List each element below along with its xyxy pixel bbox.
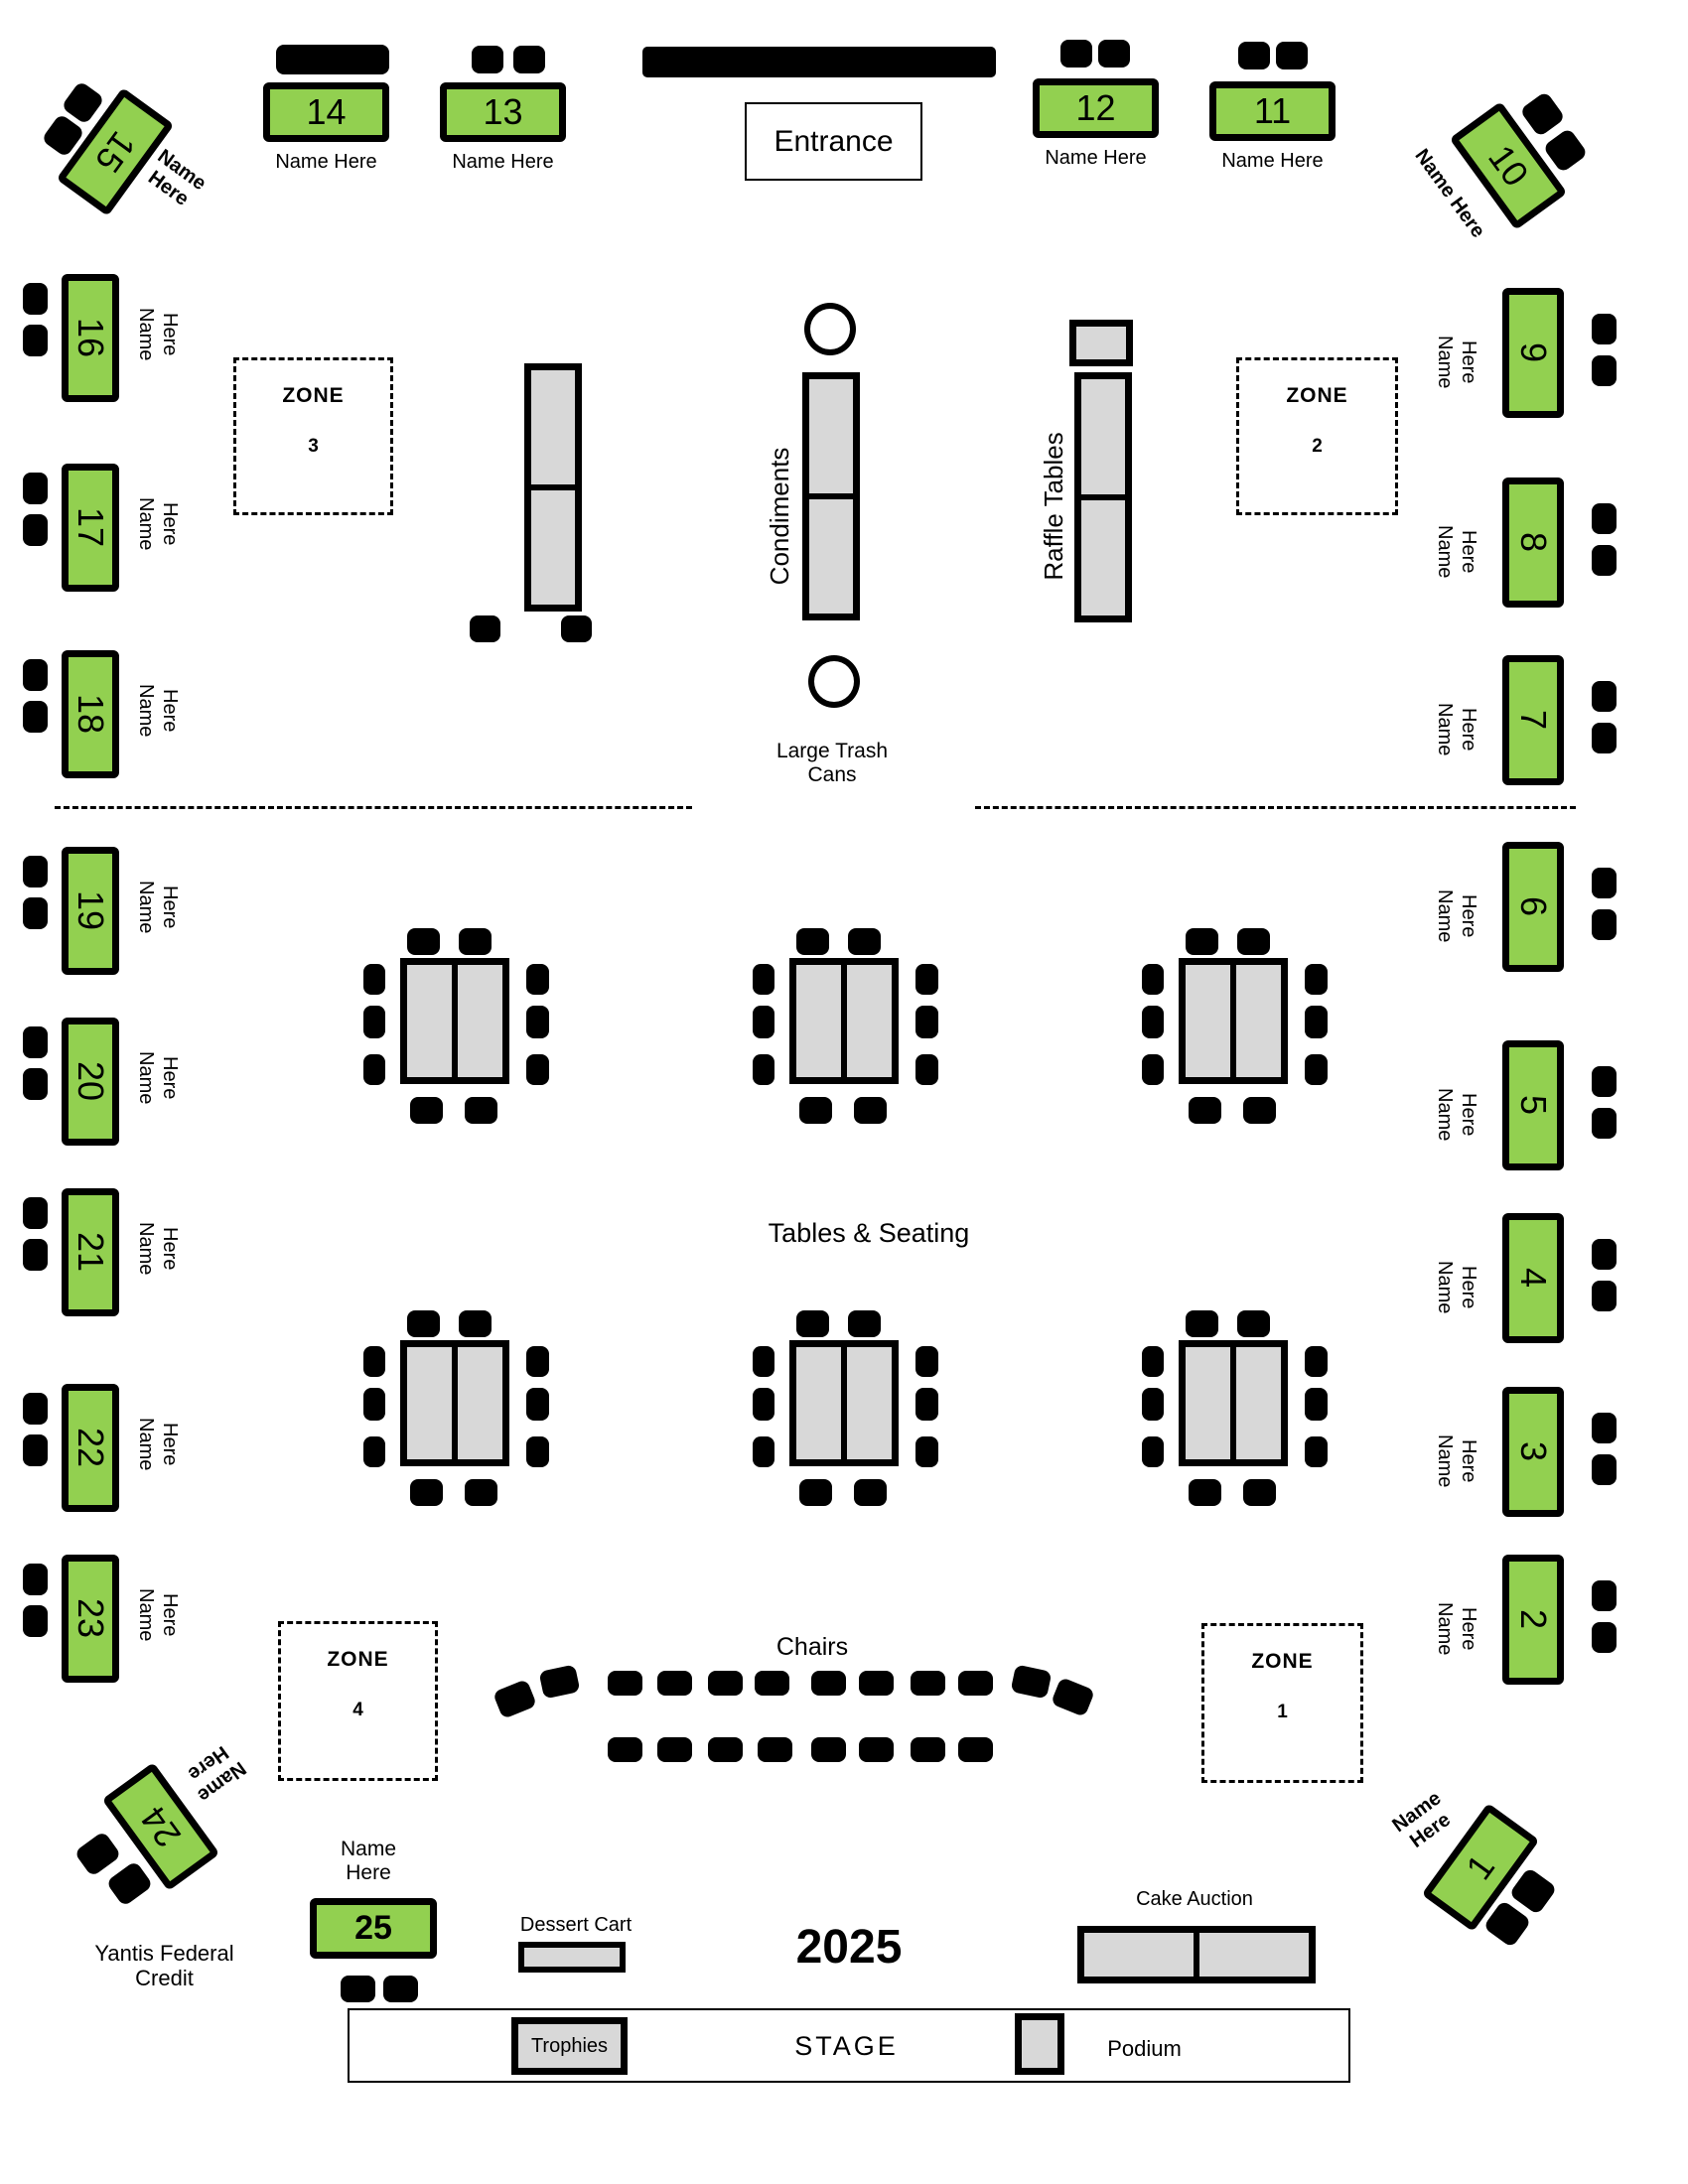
table-21-group: 21 Name Here xyxy=(23,1188,192,1318)
table-8: 8 xyxy=(1502,478,1564,608)
banquet-table xyxy=(1179,958,1288,1084)
table-4: 4 xyxy=(1502,1213,1564,1343)
chair xyxy=(561,615,592,642)
chair xyxy=(753,1006,774,1038)
table-25: 25 xyxy=(310,1898,437,1959)
chair xyxy=(23,856,48,887)
chair xyxy=(465,1479,497,1506)
table-23-group: 23 Name Here xyxy=(23,1555,192,1685)
chair xyxy=(915,1054,938,1085)
chair xyxy=(1592,1454,1617,1485)
table-23-label: Name Here xyxy=(134,1565,182,1666)
table-divider xyxy=(1080,494,1126,500)
table-22-group: 22 Name Here xyxy=(23,1384,192,1514)
table-12: 12 xyxy=(1033,78,1159,138)
chair xyxy=(1592,1580,1617,1611)
table-number: 3 xyxy=(1512,1441,1554,1461)
zone-title: ZONE xyxy=(1204,1650,1360,1674)
chair xyxy=(1237,1310,1270,1337)
table-number: 7 xyxy=(1512,710,1554,730)
chair xyxy=(1305,1006,1328,1038)
table-number: 13 xyxy=(483,91,522,133)
chair xyxy=(657,1737,692,1762)
chair xyxy=(911,1671,945,1696)
chair xyxy=(526,964,549,995)
table-number: 11 xyxy=(1254,90,1291,132)
table-14: 14 xyxy=(263,82,389,142)
zone-3-box: ZONE 3 xyxy=(233,357,393,515)
chair xyxy=(526,1054,549,1085)
chair xyxy=(848,1310,881,1337)
table-18-group: 18 Name Here xyxy=(23,650,192,780)
chair xyxy=(23,1605,48,1637)
table-number: 25 xyxy=(354,1909,392,1948)
zone-number: 4 xyxy=(281,1700,435,1721)
chair xyxy=(859,1737,894,1762)
chair xyxy=(1060,40,1092,68)
chair xyxy=(915,1346,938,1377)
chair xyxy=(1189,1479,1221,1506)
table-number: 2 xyxy=(1512,1609,1554,1629)
separator-line-right xyxy=(975,806,1576,809)
chair xyxy=(608,1671,642,1696)
chair xyxy=(608,1737,642,1762)
table-divider xyxy=(1194,1932,1199,1978)
chair xyxy=(383,1976,418,2002)
trash-can-icon xyxy=(804,303,856,355)
chair xyxy=(1142,1054,1164,1085)
banquet-table-group xyxy=(400,958,509,1084)
chair xyxy=(23,473,48,504)
trash-can-icon xyxy=(808,655,860,708)
trophies-label: Trophies xyxy=(531,2035,608,2058)
table-6-group: Name Here 6 xyxy=(1433,842,1621,972)
chair xyxy=(526,1388,549,1421)
yantis-label: Yantis Federal Credit xyxy=(77,1941,251,1991)
table-number: 6 xyxy=(1512,896,1554,916)
table-2-group: Name Here 2 xyxy=(1433,1555,1621,1685)
raffle-table-long xyxy=(1074,372,1132,622)
chair xyxy=(1592,503,1617,534)
banquet-table xyxy=(400,1340,509,1466)
table-6-label: Name Here xyxy=(1433,866,1480,967)
chair xyxy=(363,1436,385,1467)
chair xyxy=(854,1479,887,1506)
table-divider xyxy=(841,964,847,1078)
table-8-label: Name Here xyxy=(1433,501,1480,603)
table-number: 14 xyxy=(306,91,346,133)
table-divider xyxy=(1230,964,1236,1078)
chair xyxy=(23,897,48,929)
entrance-label: Entrance xyxy=(774,125,893,159)
chair xyxy=(1519,91,1566,138)
table-18-label: Name Here xyxy=(134,660,182,761)
banquet-table-group xyxy=(400,1340,509,1466)
chair xyxy=(1592,1239,1617,1270)
table-19: 19 xyxy=(62,847,119,975)
podium xyxy=(1015,2013,1064,2075)
chair xyxy=(23,1026,48,1058)
chair xyxy=(915,1006,938,1038)
chair xyxy=(1592,868,1617,898)
table-20: 20 xyxy=(62,1018,119,1146)
stage-label: STAGE xyxy=(765,2031,928,2062)
table-divider xyxy=(841,1346,847,1460)
chair xyxy=(1592,723,1617,753)
chair xyxy=(1592,681,1617,712)
chair xyxy=(459,928,492,955)
table-number: 12 xyxy=(1075,87,1115,129)
table-21: 21 xyxy=(62,1188,119,1316)
year-label: 2025 xyxy=(770,1920,928,1975)
banquet-table-group xyxy=(789,958,899,1084)
chair xyxy=(1051,1677,1095,1717)
table-17-group: 17 Name Here xyxy=(23,464,192,594)
chair xyxy=(1305,1054,1328,1085)
chair xyxy=(753,964,774,995)
table-2-label: Name Here xyxy=(1433,1578,1480,1680)
chair xyxy=(1238,42,1270,69)
chair xyxy=(105,1860,153,1907)
chair xyxy=(799,1479,832,1506)
table-9-label: Name Here xyxy=(1433,312,1480,413)
chair xyxy=(1508,1867,1557,1916)
chair xyxy=(538,1664,580,1699)
banquet-table-group xyxy=(789,1340,899,1466)
chair xyxy=(1142,1436,1164,1467)
chair xyxy=(811,1671,846,1696)
table-12-label: Name Here xyxy=(1033,147,1159,170)
zone-1-box: ZONE 1 xyxy=(1201,1623,1363,1783)
chair xyxy=(363,1006,385,1038)
table-21-label: Name Here xyxy=(134,1198,182,1299)
chairs-label: Chairs xyxy=(753,1633,872,1662)
table-5-label: Name Here xyxy=(1433,1064,1480,1165)
dessert-cart-label: Dessert Cart xyxy=(496,1914,655,1937)
chair xyxy=(859,1671,894,1696)
table-3-group: Name Here 3 xyxy=(1433,1387,1621,1517)
zone-title: ZONE xyxy=(281,1648,435,1672)
table-number: 18 xyxy=(70,694,111,734)
chair xyxy=(1186,928,1218,955)
chair xyxy=(657,1671,692,1696)
chair xyxy=(811,1737,846,1762)
chair xyxy=(915,1388,938,1421)
chair xyxy=(753,1436,774,1467)
chair xyxy=(410,1479,443,1506)
chair xyxy=(363,1346,385,1377)
table-9: 9 xyxy=(1502,288,1564,418)
chair xyxy=(848,928,881,955)
table-7: 7 xyxy=(1502,655,1564,785)
chair xyxy=(911,1737,945,1762)
chair xyxy=(341,1976,375,2002)
table-18: 18 xyxy=(62,650,119,778)
table-number: 16 xyxy=(70,318,111,357)
table-14-group: 14 Name Here xyxy=(263,82,392,174)
chair xyxy=(753,1346,774,1377)
table-7-label: Name Here xyxy=(1433,679,1480,780)
chair xyxy=(915,1436,938,1467)
chair xyxy=(23,1239,48,1271)
table-divider xyxy=(452,1346,458,1460)
chair xyxy=(1592,1413,1617,1443)
table-number: 4 xyxy=(1512,1268,1554,1288)
zone-title: ZONE xyxy=(236,384,390,408)
table-23: 23 xyxy=(62,1555,119,1683)
chair xyxy=(799,1097,832,1124)
table-4-label: Name Here xyxy=(1433,1237,1480,1338)
chair xyxy=(708,1671,743,1696)
table-number: 21 xyxy=(70,1232,111,1272)
zone-number: 2 xyxy=(1239,436,1395,458)
entrance-wall-bar xyxy=(642,47,996,77)
dessert-cart-table xyxy=(518,1942,626,1973)
cake-auction-label: Cake Auction xyxy=(1110,1888,1279,1911)
chair xyxy=(1592,909,1617,940)
table-8-group: Name Here 8 xyxy=(1433,478,1621,608)
chair xyxy=(363,1388,385,1421)
podium-label: Podium xyxy=(1082,2036,1206,2061)
chair xyxy=(1305,1436,1328,1467)
zone-number: 1 xyxy=(1204,1702,1360,1723)
chair xyxy=(513,46,545,73)
table-7-group: Name Here 7 xyxy=(1433,655,1621,785)
chair xyxy=(459,1310,492,1337)
chair xyxy=(23,1068,48,1100)
table-number: 22 xyxy=(70,1428,111,1467)
zone-title: ZONE xyxy=(1239,384,1395,408)
table-13-label: Name Here xyxy=(440,151,566,174)
zone-number: 3 xyxy=(236,436,390,458)
chair xyxy=(915,964,938,995)
chair xyxy=(1542,127,1588,173)
zone-4-box: ZONE 4 xyxy=(278,1621,438,1781)
chair xyxy=(1186,1310,1218,1337)
table-5: 5 xyxy=(1502,1040,1564,1170)
raffle-tables-label: Raffle Tables xyxy=(1040,417,1069,596)
chair xyxy=(407,928,440,955)
table-3: 3 xyxy=(1502,1387,1564,1517)
chair xyxy=(1010,1664,1052,1699)
table-divider xyxy=(808,493,854,499)
table-24-label: Name Here xyxy=(172,1732,256,1812)
table-number: 1 xyxy=(1458,1847,1503,1888)
chair xyxy=(958,1737,993,1762)
chair xyxy=(1142,1346,1164,1377)
raffle-table-small xyxy=(1069,320,1133,366)
counter-bar xyxy=(276,45,389,74)
table-25-label: Name Here xyxy=(328,1838,409,1885)
table-22-label: Name Here xyxy=(134,1394,182,1495)
table-6: 6 xyxy=(1502,842,1564,972)
chair xyxy=(755,1671,789,1696)
chair xyxy=(758,1737,792,1762)
table-2: 2 xyxy=(1502,1555,1564,1685)
table-divider xyxy=(1230,1346,1236,1460)
chair xyxy=(407,1310,440,1337)
table-9-group: Name Here 9 xyxy=(1433,288,1621,418)
chair xyxy=(958,1671,993,1696)
chair xyxy=(23,1434,48,1466)
chair xyxy=(1592,1108,1617,1139)
chair xyxy=(23,514,48,546)
chair xyxy=(23,325,48,356)
chair xyxy=(1237,928,1270,955)
table-20-group: 20 Name Here xyxy=(23,1018,192,1148)
chair xyxy=(73,1831,121,1877)
chair xyxy=(753,1388,774,1421)
table-4-group: Name Here 4 xyxy=(1433,1213,1621,1343)
table-number: 5 xyxy=(1512,1095,1554,1115)
banquet-table-group xyxy=(1179,1340,1288,1466)
table-3-label: Name Here xyxy=(1433,1411,1480,1512)
table-22: 22 xyxy=(62,1384,119,1512)
table-number: 10 xyxy=(1479,137,1537,194)
table-16-label: Name Here xyxy=(134,284,182,385)
banquet-table xyxy=(789,958,899,1084)
chair xyxy=(1592,1066,1617,1097)
chair xyxy=(796,1310,829,1337)
seating-chart-floor-plan: 14 Name Here 13 Name Here Entrance 12 Na… xyxy=(0,0,1688,2184)
chair xyxy=(1189,1097,1221,1124)
tables-seating-label: Tables & Seating xyxy=(745,1218,993,1249)
chair xyxy=(23,1564,48,1595)
chair xyxy=(526,1436,549,1467)
chair xyxy=(1243,1479,1276,1506)
table-20-label: Name Here xyxy=(134,1027,182,1129)
table-19-label: Name Here xyxy=(134,857,182,958)
chair xyxy=(854,1097,887,1124)
table-16-group: 16 Name Here xyxy=(23,274,192,404)
table-number: 24 xyxy=(132,1798,190,1854)
chair xyxy=(1592,355,1617,386)
cake-auction-table xyxy=(1077,1926,1316,1983)
table-13: 13 xyxy=(440,82,566,142)
trophies-table: Trophies xyxy=(511,2017,628,2075)
chair xyxy=(1098,40,1130,68)
table-14-label: Name Here xyxy=(263,151,389,174)
chair xyxy=(753,1054,774,1085)
table-13-group: 13 Name Here xyxy=(440,82,569,174)
chair xyxy=(526,1006,549,1038)
chair xyxy=(470,615,500,642)
large-trash-cans-label: Large Trash Cans xyxy=(763,740,902,787)
banquet-table xyxy=(789,1340,899,1466)
buffet-table xyxy=(524,363,582,612)
banquet-table xyxy=(1179,1340,1288,1466)
chair xyxy=(796,928,829,955)
chair xyxy=(410,1097,443,1124)
table-number: 9 xyxy=(1512,342,1554,362)
table-divider xyxy=(530,484,576,490)
chair xyxy=(1142,1388,1164,1421)
banquet-table-group xyxy=(1179,958,1288,1084)
table-11-group: 11 Name Here xyxy=(1209,81,1338,173)
chair xyxy=(708,1737,743,1762)
table-17: 17 xyxy=(62,464,119,592)
chair xyxy=(1142,1006,1164,1038)
table-number: 19 xyxy=(70,890,111,930)
chair xyxy=(1592,1622,1617,1653)
table-number: 17 xyxy=(70,507,111,547)
chair xyxy=(1305,1346,1328,1377)
table-11: 11 xyxy=(1209,81,1336,141)
separator-line-left xyxy=(55,806,692,809)
table-number: 8 xyxy=(1512,532,1554,552)
condiments-table xyxy=(802,372,860,620)
table-19-group: 19 Name Here xyxy=(23,847,192,977)
chair xyxy=(23,1197,48,1229)
table-5-group: Name Here 5 xyxy=(1433,1040,1621,1170)
chair xyxy=(1276,42,1308,69)
table-17-label: Name Here xyxy=(134,474,182,575)
chair xyxy=(472,46,503,73)
chair xyxy=(363,964,385,995)
chair xyxy=(1305,964,1328,995)
chair xyxy=(363,1054,385,1085)
entrance-box: Entrance xyxy=(745,102,922,181)
chair xyxy=(492,1679,537,1719)
table-divider xyxy=(452,964,458,1078)
chair xyxy=(23,283,48,315)
banquet-table xyxy=(400,958,509,1084)
table-number: 23 xyxy=(70,1598,111,1638)
condiments-label: Condiments xyxy=(766,427,795,606)
chair xyxy=(1592,1281,1617,1311)
chair xyxy=(1142,964,1164,995)
chair xyxy=(526,1346,549,1377)
table-16: 16 xyxy=(62,274,119,402)
chair xyxy=(1243,1097,1276,1124)
table-12-group: 12 Name Here xyxy=(1033,78,1162,170)
chair xyxy=(23,701,48,733)
chair xyxy=(23,1393,48,1425)
zone-2-box: ZONE 2 xyxy=(1236,357,1398,515)
chair xyxy=(465,1097,497,1124)
chair xyxy=(1592,314,1617,344)
table-number: 20 xyxy=(70,1061,111,1101)
table-11-label: Name Here xyxy=(1209,150,1336,173)
chair xyxy=(1592,545,1617,576)
chair xyxy=(23,659,48,691)
chair xyxy=(1305,1388,1328,1421)
